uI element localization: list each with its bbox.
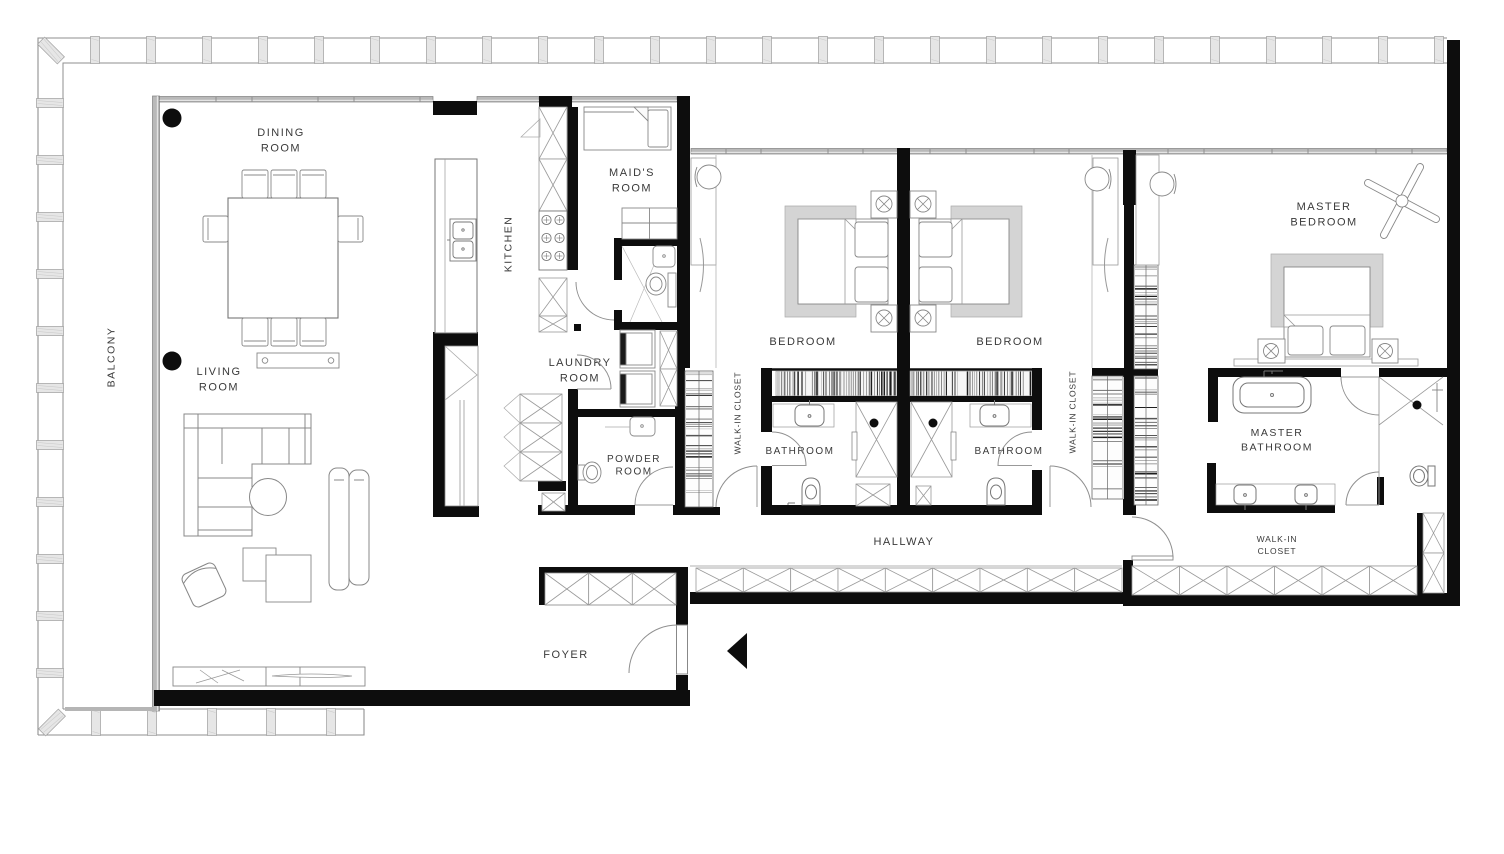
svg-text:BEDROOM: BEDROOM xyxy=(976,336,1043,348)
svg-text:WALK-IN CLOSET: WALK-IN CLOSET xyxy=(1068,371,1078,454)
svg-text:KITCHEN: KITCHEN xyxy=(503,216,515,273)
svg-text:BATHROOM: BATHROOM xyxy=(974,446,1043,457)
svg-text:BALCONY: BALCONY xyxy=(106,327,118,388)
svg-text:FOYER: FOYER xyxy=(543,649,588,661)
svg-text:HALLWAY: HALLWAY xyxy=(873,536,934,548)
svg-text:WALK-IN CLOSET: WALK-IN CLOSET xyxy=(733,372,743,455)
svg-text:BEDROOM: BEDROOM xyxy=(769,336,836,348)
svg-text:BATHROOM: BATHROOM xyxy=(765,446,834,457)
